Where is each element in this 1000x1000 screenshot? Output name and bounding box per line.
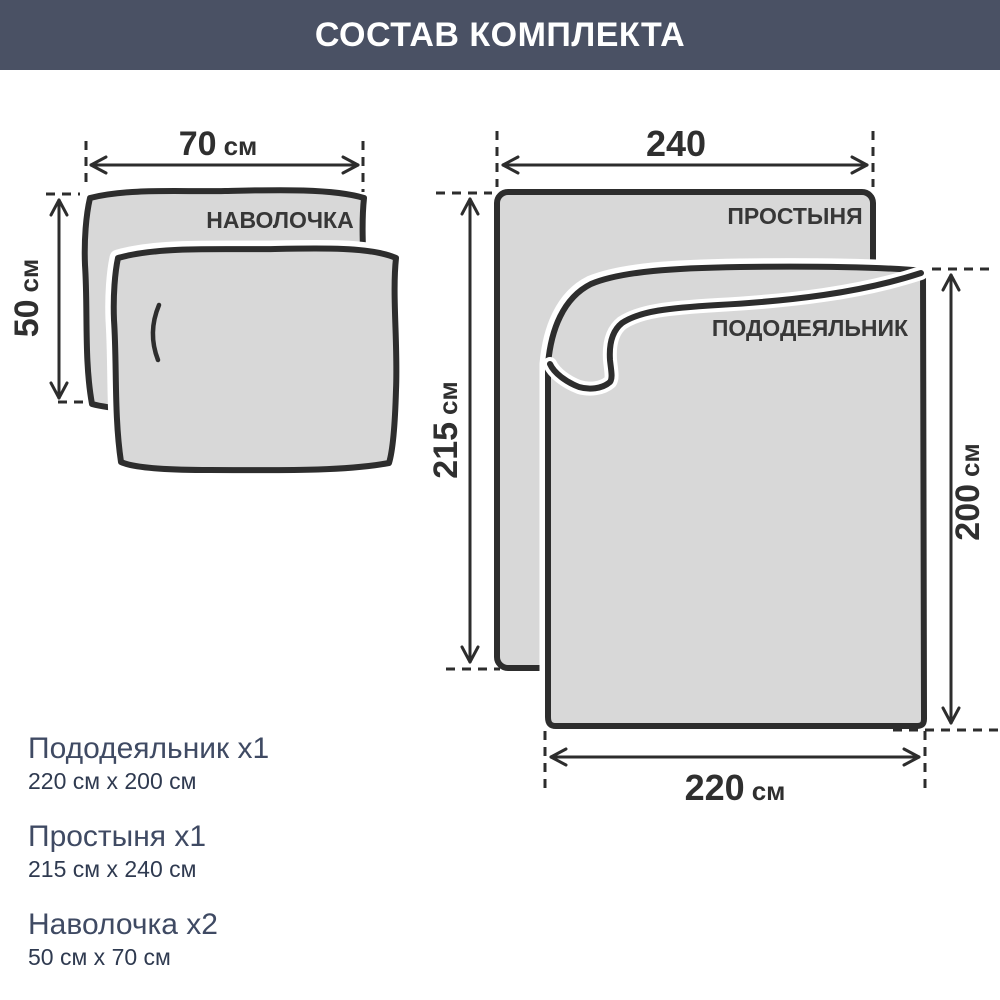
set-contents-list: Пододеяльник x1 220 см x 200 см Простыня…	[28, 734, 269, 998]
pillowcase-group: НАВОЛОЧКА 70см 50см	[8, 125, 396, 470]
duvet-width-dimension: 220см	[545, 731, 925, 808]
item-name: Пододеяльник x1	[28, 734, 269, 764]
pillowcase-width-dimension: 70см	[86, 125, 363, 192]
svg-text:220см: 220см	[685, 767, 786, 808]
svg-text:240: 240	[646, 123, 706, 164]
svg-text:200см: 200см	[949, 443, 987, 540]
sheet-height-dimension: 215см	[427, 193, 500, 669]
item-size: 50 см x 70 см	[28, 944, 269, 970]
list-item-duvet: Пододеяльник x1 220 см x 200 см	[28, 734, 269, 794]
item-size: 220 см x 200 см	[28, 768, 269, 794]
svg-text:70см: 70см	[179, 125, 258, 163]
list-item-sheet: Простыня x1 215 см x 240 см	[28, 822, 269, 882]
pillowcase-label: НАВОЛОЧКА	[206, 207, 353, 233]
svg-text:215см: 215см	[427, 381, 465, 478]
sheet-width-dimension: 240	[497, 123, 873, 187]
item-name: Наволочка x2	[28, 910, 269, 940]
svg-text:50см: 50см	[8, 259, 46, 338]
duvet-label: ПОДОДЕЯЛЬНИК	[712, 315, 909, 341]
item-size: 215 см x 240 см	[28, 856, 269, 882]
sheet-label: ПРОСТЫНЯ	[727, 203, 862, 229]
item-name: Простыня x1	[28, 822, 269, 852]
list-item-pillowcase: Наволочка x2 50 см x 70 см	[28, 910, 269, 970]
pillowcase-height-dimension: 50см	[8, 194, 84, 402]
duvet-group: ПОДОДЕЯЛЬНИК 200см 220см	[545, 267, 998, 808]
